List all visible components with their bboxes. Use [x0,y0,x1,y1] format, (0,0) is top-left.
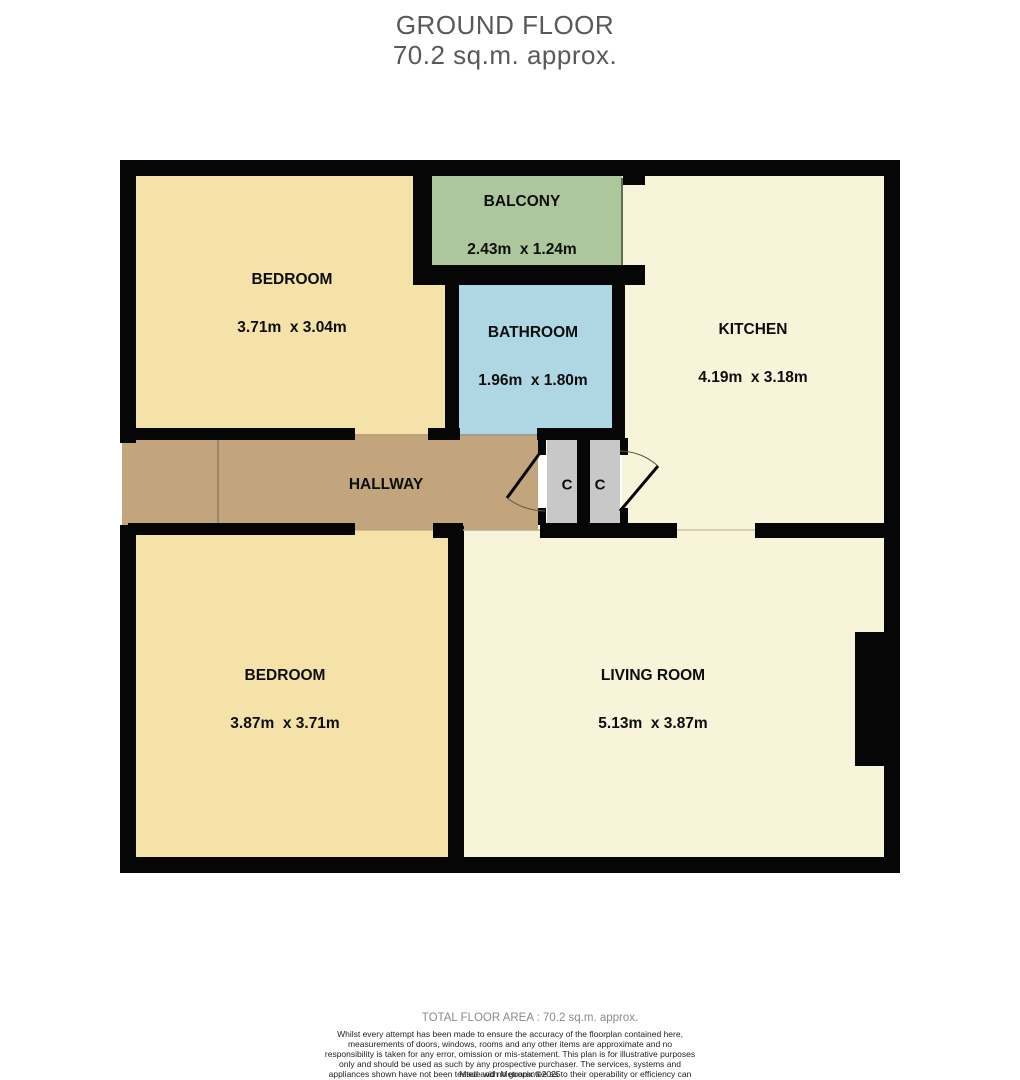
closet-right-stub-top [620,438,628,455]
wall-below-closets [540,523,677,538]
wall-hallway-bottom-left [128,523,355,535]
room-dims: 1.96m x 1.80m [478,373,587,389]
hallway-area [133,434,538,530]
room-label-bedroom-bottom: BEDROOM 3.87m x 3.71m [230,636,339,764]
room-name: LIVING ROOM [598,668,707,684]
closet-right-label: C [595,477,606,494]
floorplan-page: GROUND FLOOR 70.2 sq.m. approx. [0,0,1020,1080]
closet-left-stub-top [538,438,546,455]
room-dims: 2.43m x 1.24m [467,242,576,258]
wall-closet-divider [577,434,590,530]
wall-outer-bottom [120,857,900,873]
plan-title-line1: GROUND FLOOR [0,10,1010,40]
room-label-living-room: LIVING ROOM 5.13m x 3.87m [598,636,707,764]
closet-left-label: C [562,477,573,494]
room-name: KITCHEN [698,322,807,338]
bedroom-top-area-ext [420,283,447,440]
floorplan-drawing: BEDROOM 3.71m x 3.04m BALCONY 2.43m x 1.… [120,158,900,874]
room-label-hallway: HALLWAY [349,445,423,525]
wall-bathroom-right [612,270,625,440]
wall-bathroom-left [445,278,459,440]
room-name: HALLWAY [349,477,423,493]
plan-title-line2: 70.2 sq.m. approx. [0,40,1010,70]
room-label-bathroom: BATHROOM 1.96m x 1.80m [478,293,587,421]
room-dims: 3.87m x 3.71m [230,716,339,732]
room-name: BEDROOM [237,272,346,288]
chimney-breast [855,632,886,766]
wall-hallway-top-left [128,428,355,440]
room-label-kitchen: KITCHEN 4.19m x 3.18m [698,290,807,418]
wall-bedroom-living-divider [448,526,464,860]
room-name: BALCONY [467,194,576,210]
entrance-opening-area [122,443,136,525]
wall-balcony-stub-top [623,160,645,185]
wall-outer-left-upper [120,160,136,443]
wall-kitchen-living [755,523,888,538]
room-name: BEDROOM [230,668,339,684]
plan-title: GROUND FLOOR 70.2 sq.m. approx. [0,10,1010,70]
room-dims: 4.19m x 3.18m [698,370,807,386]
room-label-balcony: BALCONY 2.43m x 1.24m [467,162,576,290]
room-name: BATHROOM [478,325,587,341]
room-dims: 3.71m x 3.04m [237,320,346,336]
room-dims: 5.13m x 3.87m [598,716,707,732]
wall-outer-right [884,160,900,873]
wall-outer-left-lower [120,525,136,873]
room-label-bedroom-top: BEDROOM 3.71m x 3.04m [237,240,346,368]
total-floor-area: TOTAL FLOOR AREA : 70.2 sq.m. approx. [310,1012,750,1024]
credit-text: Made with Metropix ©2025 [324,1069,696,1079]
wall-hallway-top-stub [428,428,460,440]
